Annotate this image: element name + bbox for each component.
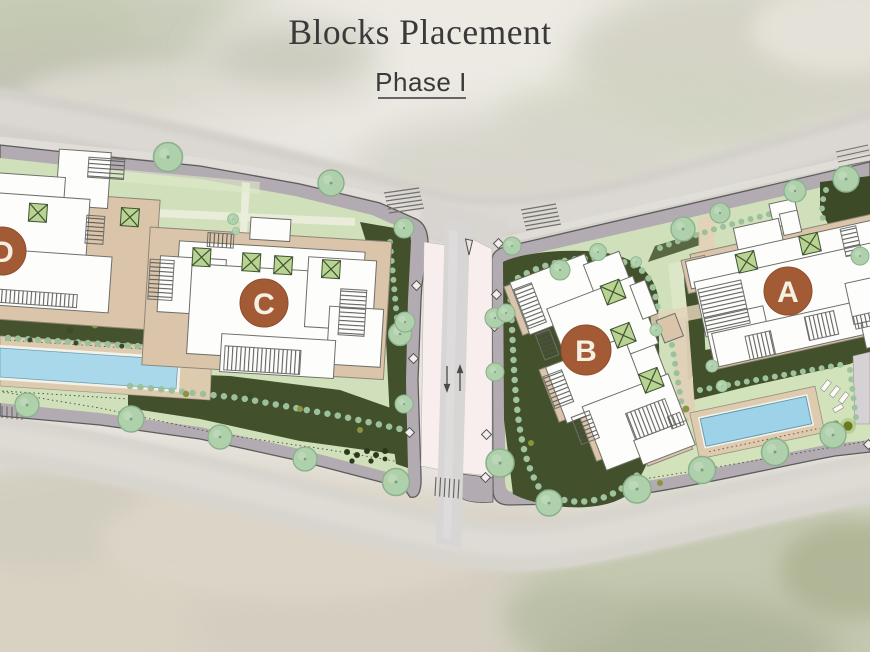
- svg-text:B: B: [575, 335, 597, 368]
- svg-text:A: A: [777, 276, 799, 309]
- svg-text:D: D: [0, 236, 14, 269]
- svg-text:Blocks Placement: Blocks Placement: [288, 12, 551, 52]
- svg-text:C: C: [253, 288, 275, 321]
- svg-text:Phase I: Phase I: [375, 67, 467, 97]
